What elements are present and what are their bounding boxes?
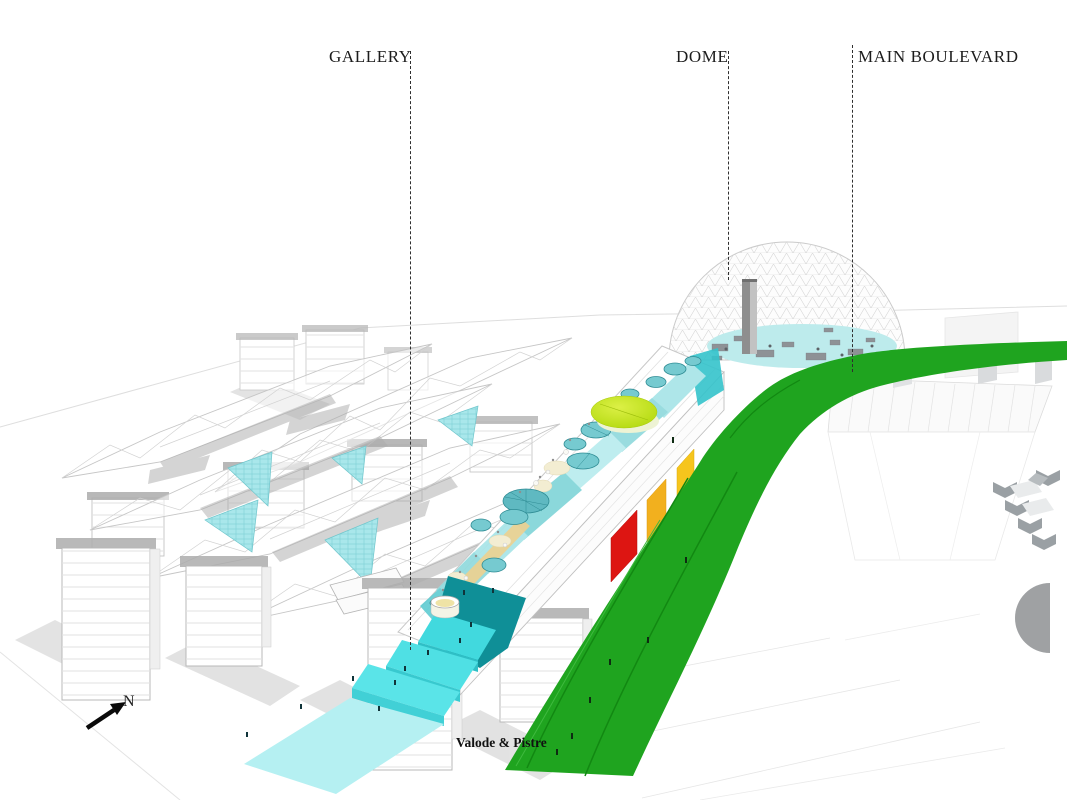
office-tower xyxy=(56,538,160,700)
axonometric-scene xyxy=(0,0,1067,800)
credit-text: Valode & Pistre xyxy=(456,735,547,751)
main-boulevard-label: MAIN BOULEVARD xyxy=(858,47,1019,67)
north-label: N xyxy=(123,693,135,711)
direction-chevrons xyxy=(993,470,1060,550)
main-boulevard-leader-line xyxy=(852,45,853,372)
dome-label: DOME xyxy=(676,47,728,67)
gallery-label: GALLERY xyxy=(329,47,412,67)
masterplan-rendering: GALLERY DOME MAIN BOULEVARD N Valode & P… xyxy=(0,0,1067,800)
dome-tower xyxy=(742,279,757,354)
dome-leader-line xyxy=(728,51,729,280)
gallery-leader-line xyxy=(410,51,411,650)
geodesic-dome xyxy=(669,242,905,368)
water-pool-cylinder xyxy=(431,596,459,618)
north-arrow-icon xyxy=(87,702,126,728)
office-tower xyxy=(180,556,271,666)
turning-circle xyxy=(1015,583,1050,653)
